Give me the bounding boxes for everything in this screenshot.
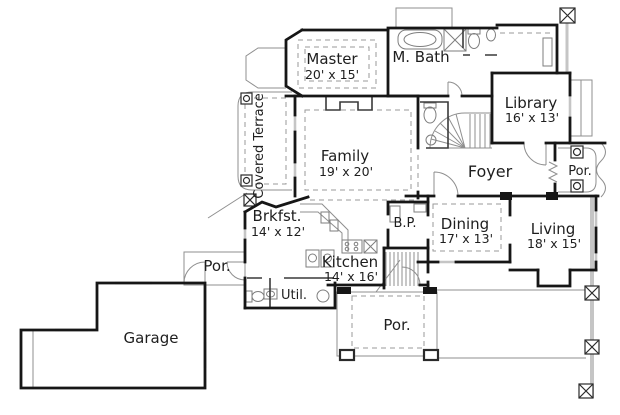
breakfast-size: 14' x 12' bbox=[251, 224, 305, 239]
master-bay-window bbox=[246, 48, 286, 88]
cooktop-icon bbox=[342, 240, 377, 253]
floor-plan-page: Master 20' x 15' M. Bath Library 16' x 1… bbox=[0, 0, 620, 415]
column-x-right-3 bbox=[579, 384, 593, 398]
family-size: 19' x 20' bbox=[319, 164, 373, 179]
sink-icon bbox=[487, 29, 496, 41]
column-x-topright bbox=[560, 8, 575, 23]
room-labels: Master 20' x 15' M. Bath Library 16' x 1… bbox=[124, 48, 592, 347]
column-x-right-1 bbox=[585, 286, 599, 300]
powder-toilet-icon bbox=[424, 103, 436, 145]
tub-bay bbox=[396, 8, 452, 28]
front-porch-column-2 bbox=[424, 350, 438, 360]
right-porch-column-1 bbox=[571, 146, 583, 158]
closet-shelf bbox=[543, 38, 552, 66]
kitchen-size: 14' x 16' bbox=[324, 269, 378, 284]
kitchen-sink-icon bbox=[321, 212, 338, 231]
master-size: 20' x 15' bbox=[305, 67, 359, 82]
utility-label: Util. bbox=[281, 288, 307, 303]
powder2-toilet-icon bbox=[246, 289, 277, 302]
kitchen-counter bbox=[300, 204, 348, 252]
library-size: 16' x 13' bbox=[505, 110, 559, 125]
dining-size: 17' x 13' bbox=[439, 231, 493, 246]
library-window-bay bbox=[570, 80, 592, 136]
butlers-pantry-label: B.P. bbox=[394, 216, 417, 231]
family-label: Family bbox=[321, 147, 369, 165]
porch-front-label: Por. bbox=[383, 316, 410, 334]
family-media-niche bbox=[326, 96, 372, 110]
fireplace-icon bbox=[538, 270, 570, 286]
right-porch-column-2 bbox=[571, 180, 583, 192]
terrace-column-1 bbox=[241, 93, 252, 104]
curved-stairs-icon bbox=[430, 113, 492, 148]
water-heater-icon bbox=[317, 290, 329, 302]
terrace-column-2 bbox=[241, 175, 252, 186]
tub-icon bbox=[398, 30, 442, 49]
right-porch-roof-wave bbox=[597, 143, 606, 197]
french-door-icon bbox=[549, 162, 557, 182]
master-label: Master bbox=[306, 50, 358, 68]
garage-label: Garage bbox=[124, 329, 179, 347]
breakfast-label: Brkfst. bbox=[253, 207, 302, 225]
floor-plan-svg: Master 20' x 15' M. Bath Library 16' x 1… bbox=[0, 0, 620, 415]
master-bath-label: M. Bath bbox=[392, 48, 449, 66]
front-porch-column-1 bbox=[340, 350, 354, 360]
column-x-right-2 bbox=[585, 340, 599, 354]
terrace-roof-diagonal bbox=[208, 193, 247, 218]
covered-terrace-label: Covered Terrace bbox=[252, 93, 267, 198]
toilet-icon bbox=[468, 29, 480, 49]
porch-right-label: Por. bbox=[568, 164, 592, 179]
foyer-label: Foyer bbox=[468, 162, 513, 181]
living-size: 18' x 15' bbox=[527, 236, 581, 251]
side-terrace-lines bbox=[437, 290, 586, 358]
porch-left-label: Por. bbox=[203, 257, 230, 275]
